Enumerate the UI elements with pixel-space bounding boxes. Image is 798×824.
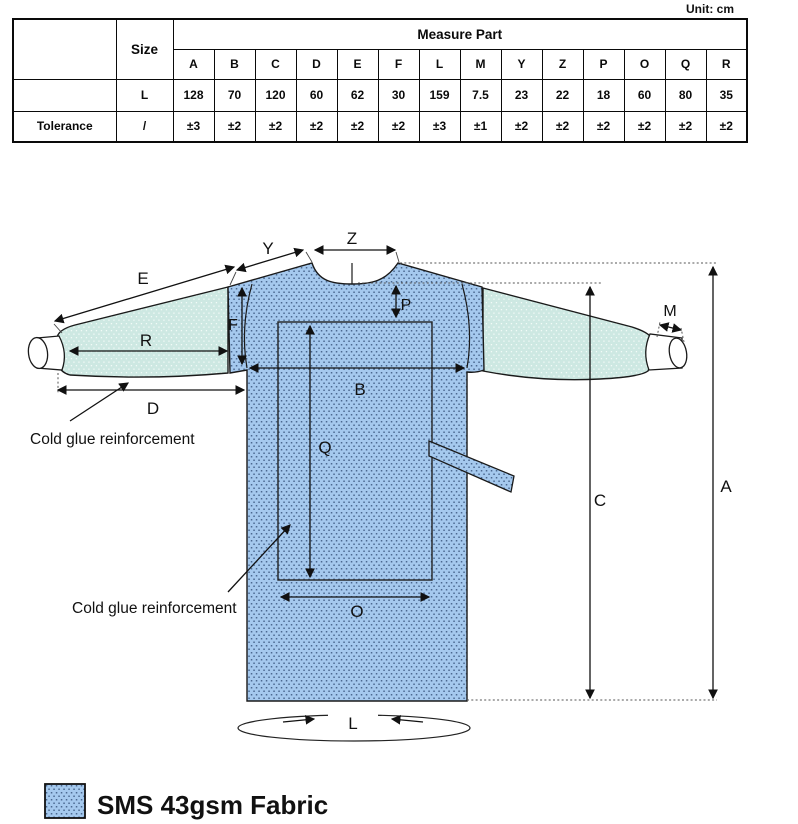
dim-label-Q: Q xyxy=(318,438,331,457)
legend-fabric-swatch xyxy=(45,784,85,818)
dim-label-Y: Y xyxy=(262,239,273,258)
tolerance-cell: ±2 xyxy=(542,111,583,142)
tolerance-cell: ±2 xyxy=(378,111,419,142)
value-cell: 120 xyxy=(255,79,296,111)
hem-arrow-left xyxy=(283,719,314,722)
left-cuff xyxy=(27,336,65,370)
gown-diagram: E Y Z P F R D B Q O M C A Cold glue rein… xyxy=(0,150,798,824)
tolerance-label: Tolerance xyxy=(13,111,116,142)
tolerance-row: Tolerance / ±3 ±2 ±2 ±2 ±2 ±2 ±3 ±1 ±2 ±… xyxy=(13,111,747,142)
value-cell: 62 xyxy=(337,79,378,111)
value-cell: 30 xyxy=(378,79,419,111)
tolerance-cell: ±2 xyxy=(255,111,296,142)
value-cell: 7.5 xyxy=(460,79,501,111)
tick-y-left xyxy=(230,272,236,285)
right-sleeve xyxy=(483,288,652,380)
corner-cell xyxy=(13,19,116,79)
dim-label-M: M xyxy=(663,303,676,320)
tolerance-cell: ±2 xyxy=(214,111,255,142)
tolerance-size-value: / xyxy=(116,111,173,142)
dim-label-L: L xyxy=(348,714,357,733)
value-cell: 128 xyxy=(173,79,214,111)
tolerance-cell: ±2 xyxy=(665,111,706,142)
col-header: P xyxy=(583,49,624,79)
col-header: F xyxy=(378,49,419,79)
tick-yz xyxy=(306,252,312,262)
size-L-row: L 128 70 120 60 62 30 159 7.5 23 22 18 6… xyxy=(13,79,747,111)
value-cell: 18 xyxy=(583,79,624,111)
value-cell: 60 xyxy=(624,79,665,111)
dim-label-C: C xyxy=(594,491,606,510)
tolerance-cell: ±2 xyxy=(296,111,337,142)
col-header: L xyxy=(419,49,460,79)
col-header: A xyxy=(173,49,214,79)
tolerance-cell: ±2 xyxy=(501,111,542,142)
value-cell: 159 xyxy=(419,79,460,111)
tolerance-cell: ±1 xyxy=(460,111,501,142)
size-value: L xyxy=(116,79,173,111)
size-header: Size xyxy=(116,19,173,79)
col-header: Z xyxy=(542,49,583,79)
dim-label-Z: Z xyxy=(347,229,357,248)
tolerance-cell: ±2 xyxy=(624,111,665,142)
dim-label-A: A xyxy=(720,477,732,496)
value-cell: 22 xyxy=(542,79,583,111)
dim-label-B: B xyxy=(354,380,365,399)
dim-label-D: D xyxy=(147,399,159,418)
dim-arrow-M xyxy=(660,325,681,330)
tick-z-right xyxy=(396,252,399,262)
value-cell: 60 xyxy=(296,79,337,111)
cold-glue-label-1: Cold glue reinforcement xyxy=(30,431,195,448)
dim-label-P: P xyxy=(401,297,412,314)
dim-label-E: E xyxy=(137,269,148,288)
tolerance-cell: ±3 xyxy=(419,111,460,142)
col-header: D xyxy=(296,49,337,79)
col-header: C xyxy=(255,49,296,79)
col-header: R xyxy=(706,49,747,79)
cold-glue-arrow-1 xyxy=(70,383,128,421)
value-cell: 80 xyxy=(665,79,706,111)
tolerance-cell: ±2 xyxy=(337,111,378,142)
value-cell: 70 xyxy=(214,79,255,111)
value-cell: 23 xyxy=(501,79,542,111)
hem-arrow-right xyxy=(392,719,423,722)
measurement-table: Size Measure Part A B C D E F L M Y Z P … xyxy=(12,18,748,143)
gown-body xyxy=(228,263,484,701)
cold-glue-label-2: Cold glue reinforcement xyxy=(72,600,237,617)
right-cuff xyxy=(646,334,689,370)
col-header: B xyxy=(214,49,255,79)
tolerance-cell: ±2 xyxy=(583,111,624,142)
empty-row-label xyxy=(13,79,116,111)
unit-label: Unit: cm xyxy=(686,2,734,16)
tolerance-cell: ±2 xyxy=(706,111,747,142)
value-cell: 35 xyxy=(706,79,747,111)
spec-sheet-page: Unit: cm Size Measure Part A B C D E F L… xyxy=(0,0,798,824)
tick-e-left xyxy=(54,324,62,333)
dim-label-F: F xyxy=(228,317,238,334)
tolerance-cell: ±3 xyxy=(173,111,214,142)
col-header: O xyxy=(624,49,665,79)
dim-label-R: R xyxy=(140,331,152,350)
col-header: Y xyxy=(501,49,542,79)
measure-part-header: Measure Part xyxy=(173,19,747,49)
col-header: M xyxy=(460,49,501,79)
dim-label-O: O xyxy=(350,602,363,621)
legend-label: SMS 43gsm Fabric xyxy=(97,790,328,820)
col-header: E xyxy=(337,49,378,79)
col-header: Q xyxy=(665,49,706,79)
